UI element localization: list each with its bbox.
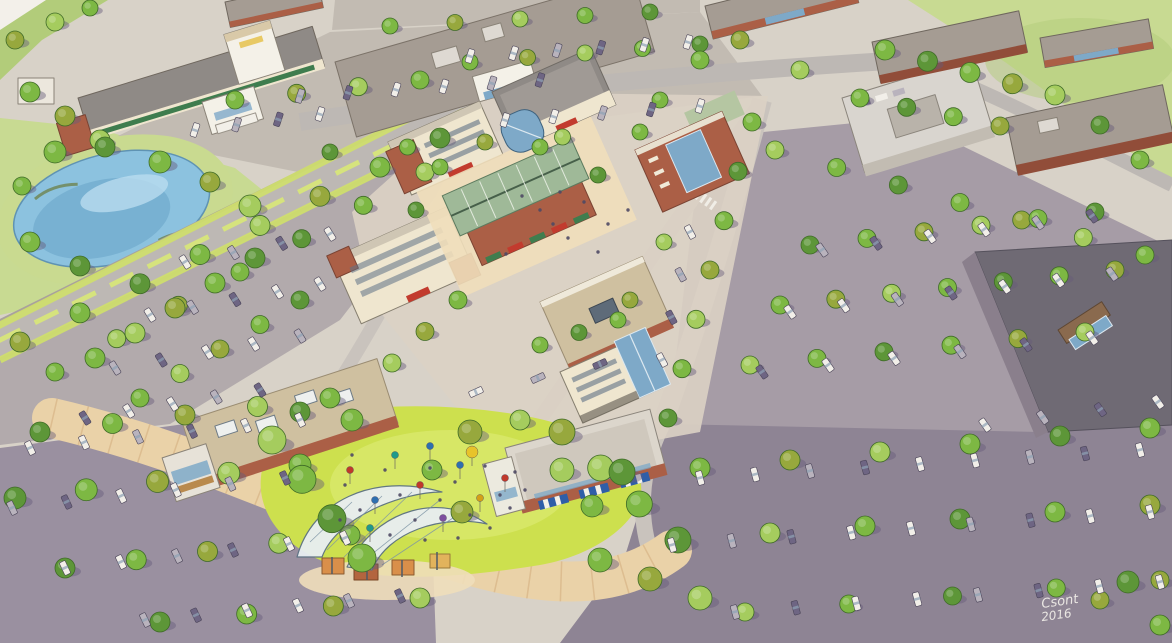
- person: [438, 498, 441, 501]
- person: [566, 236, 569, 239]
- kiosk: [392, 560, 414, 575]
- person: [488, 526, 491, 529]
- person: [508, 506, 511, 509]
- person: [582, 200, 585, 203]
- kiosk: [430, 554, 450, 568]
- person: [520, 194, 523, 197]
- person: [453, 480, 456, 483]
- person: [504, 252, 507, 255]
- person: [413, 518, 416, 521]
- person: [513, 470, 516, 473]
- person: [523, 488, 526, 491]
- person: [456, 536, 459, 539]
- person: [626, 208, 629, 211]
- person: [423, 538, 426, 541]
- person: [538, 208, 541, 211]
- person: [388, 533, 391, 536]
- kiosk: [322, 558, 344, 574]
- rendering-canvas: Csont 2016: [0, 0, 1172, 643]
- person: [350, 453, 353, 456]
- aerial-rendering: Csont 2016: [0, 0, 1172, 643]
- person: [383, 468, 386, 471]
- person: [483, 464, 486, 467]
- person: [338, 518, 341, 521]
- person: [428, 466, 431, 469]
- person: [468, 513, 471, 516]
- person: [498, 493, 501, 496]
- person: [558, 190, 561, 193]
- person: [343, 483, 346, 486]
- person: [596, 250, 599, 253]
- person: [398, 493, 401, 496]
- person: [606, 222, 609, 225]
- person: [551, 222, 554, 225]
- person: [358, 508, 361, 511]
